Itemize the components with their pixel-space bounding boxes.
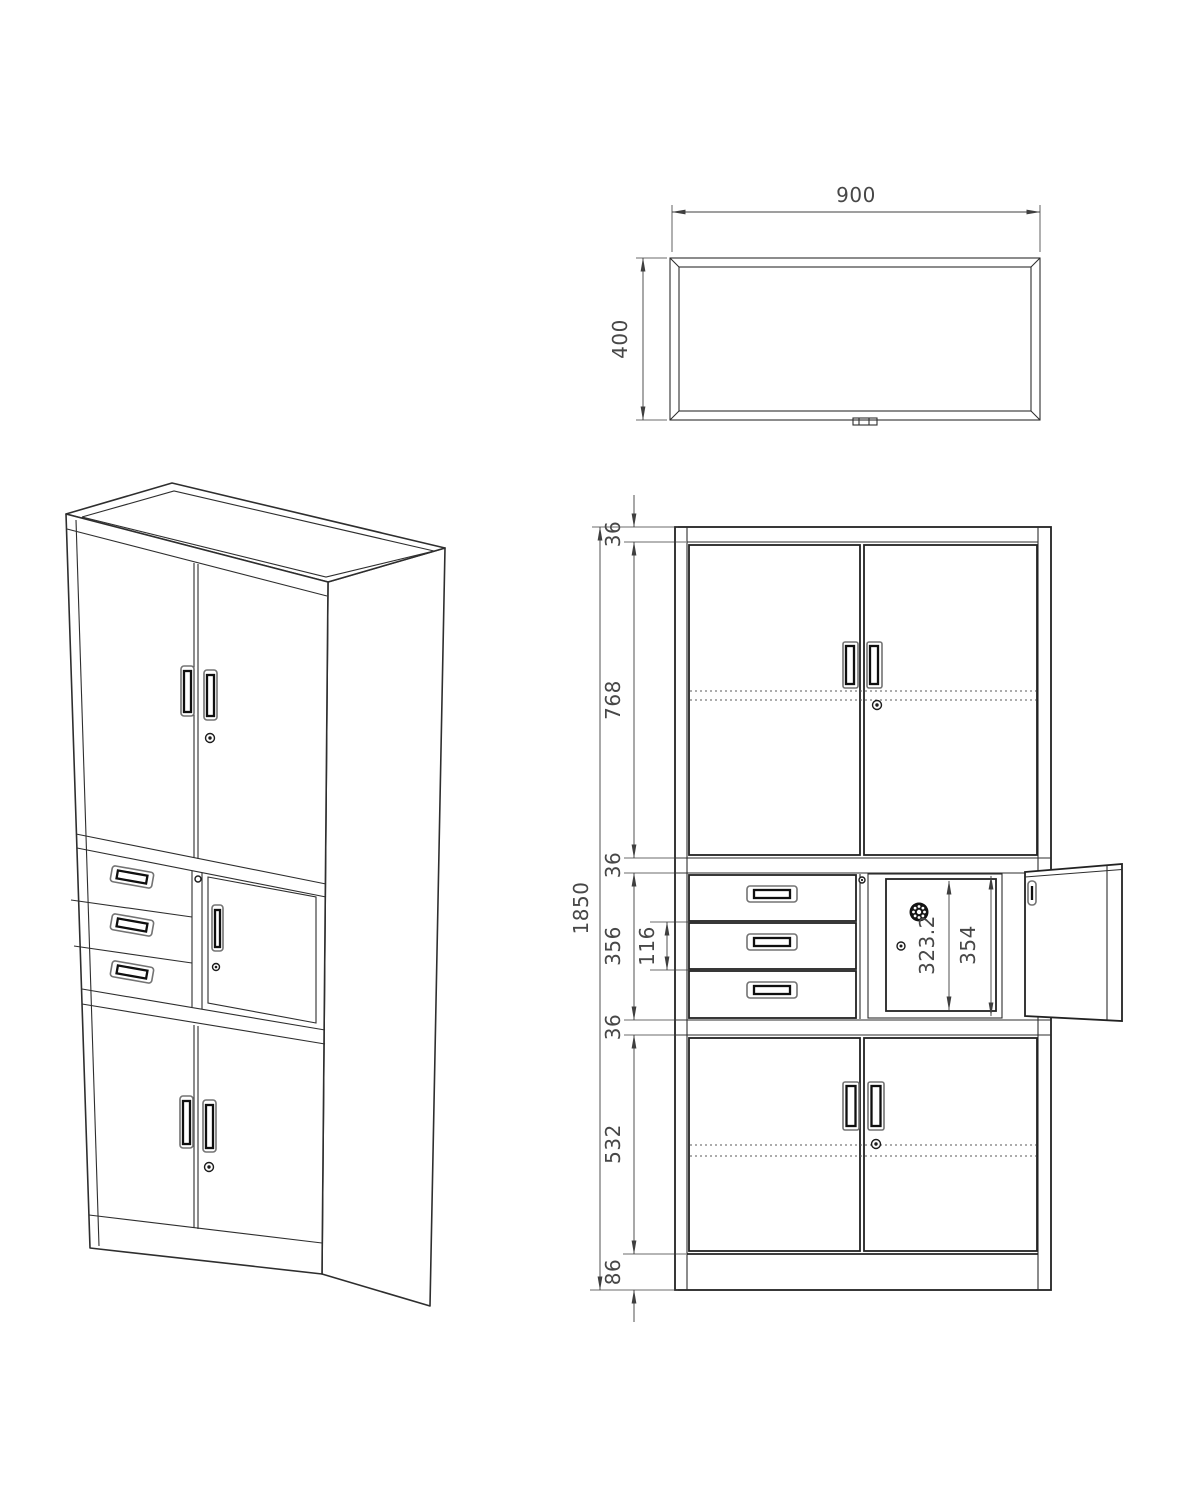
drawer-handle-3 bbox=[747, 982, 797, 998]
upper-left-door-handle-slot bbox=[846, 646, 854, 684]
iso-lower-keyhole-pin bbox=[207, 1165, 210, 1168]
iso-middle-keyhole-icon bbox=[195, 876, 201, 882]
iso-upper-right-handle-slot bbox=[207, 675, 214, 716]
front-view: 323.2 354 bbox=[569, 495, 1122, 1322]
cabinet-technical-drawing: 900 400 bbox=[0, 0, 1181, 1500]
top-view-miter-tl bbox=[670, 258, 679, 267]
dimension-safe-door-height: 323.2 bbox=[915, 881, 949, 1010]
top-view-miter-bl bbox=[670, 411, 679, 420]
iso-upper-keyhole-pin bbox=[208, 736, 211, 739]
iso-lower-right-handle-slot bbox=[206, 1105, 213, 1148]
iso-safe-door bbox=[208, 877, 316, 1023]
top-view-outer bbox=[670, 258, 1040, 420]
safe-keyhole-pin bbox=[900, 945, 903, 948]
overall-height-label: 1850 bbox=[569, 882, 593, 935]
front-dimensions: 1850 36 768 36 356 116 36 532 86 bbox=[569, 495, 700, 1322]
isometric-view bbox=[66, 483, 445, 1306]
middle-section-label: 356 bbox=[601, 926, 625, 966]
divider-upper-label: 36 bbox=[601, 852, 625, 878]
lower-doors-label: 532 bbox=[601, 1124, 625, 1164]
drawer-handle-2 bbox=[747, 934, 797, 950]
upper-right-door-handle-slot bbox=[870, 646, 878, 684]
drawer-handle-1 bbox=[747, 886, 797, 902]
upper-doors-label: 768 bbox=[601, 680, 625, 720]
top-view-inner bbox=[679, 267, 1031, 411]
iso-upper-left-handle-slot bbox=[184, 671, 191, 712]
lower-door-keyhole-pin bbox=[874, 1142, 877, 1145]
upper-door-keyhole-pin bbox=[875, 703, 878, 706]
drawing-sheet: 900 400 bbox=[0, 0, 1181, 1500]
lower-left-door-handle-slot bbox=[847, 1086, 856, 1126]
safe-open-door bbox=[1025, 864, 1122, 1021]
safe-opening-height-label: 354 bbox=[956, 925, 980, 965]
lower-left-door bbox=[689, 1038, 860, 1251]
lower-right-door-handle-slot bbox=[872, 1086, 881, 1126]
base-label: 86 bbox=[601, 1259, 625, 1285]
divider-lower-label: 36 bbox=[601, 1014, 625, 1040]
middle-drawer-label: 116 bbox=[635, 926, 659, 966]
iso-safe-keyhole-pin bbox=[215, 966, 218, 969]
middle-divider-keyhole-pin bbox=[861, 879, 863, 881]
top-view-lock-tab bbox=[853, 418, 877, 425]
dimension-safe-opening-height: 354 bbox=[956, 876, 991, 1016]
top-width-label: 900 bbox=[836, 183, 876, 207]
top-view-miter-tr bbox=[1031, 258, 1040, 267]
iso-side-panel bbox=[322, 548, 445, 1306]
upper-left-door bbox=[689, 545, 860, 855]
dimension-top-width: 900 bbox=[672, 183, 1040, 252]
top-view: 900 400 bbox=[608, 183, 1040, 425]
top-frame-label: 36 bbox=[601, 521, 625, 547]
top-view-miter-br bbox=[1031, 411, 1040, 420]
lower-right-door bbox=[864, 1038, 1037, 1251]
iso-safe-handle-slot bbox=[215, 910, 220, 947]
top-depth-label: 400 bbox=[608, 319, 632, 359]
front-carcass bbox=[675, 527, 1051, 1290]
iso-lower-left-handle-slot bbox=[183, 1101, 190, 1144]
safe-door-height-label: 323.2 bbox=[915, 915, 939, 975]
dimension-top-depth: 400 bbox=[608, 258, 667, 420]
